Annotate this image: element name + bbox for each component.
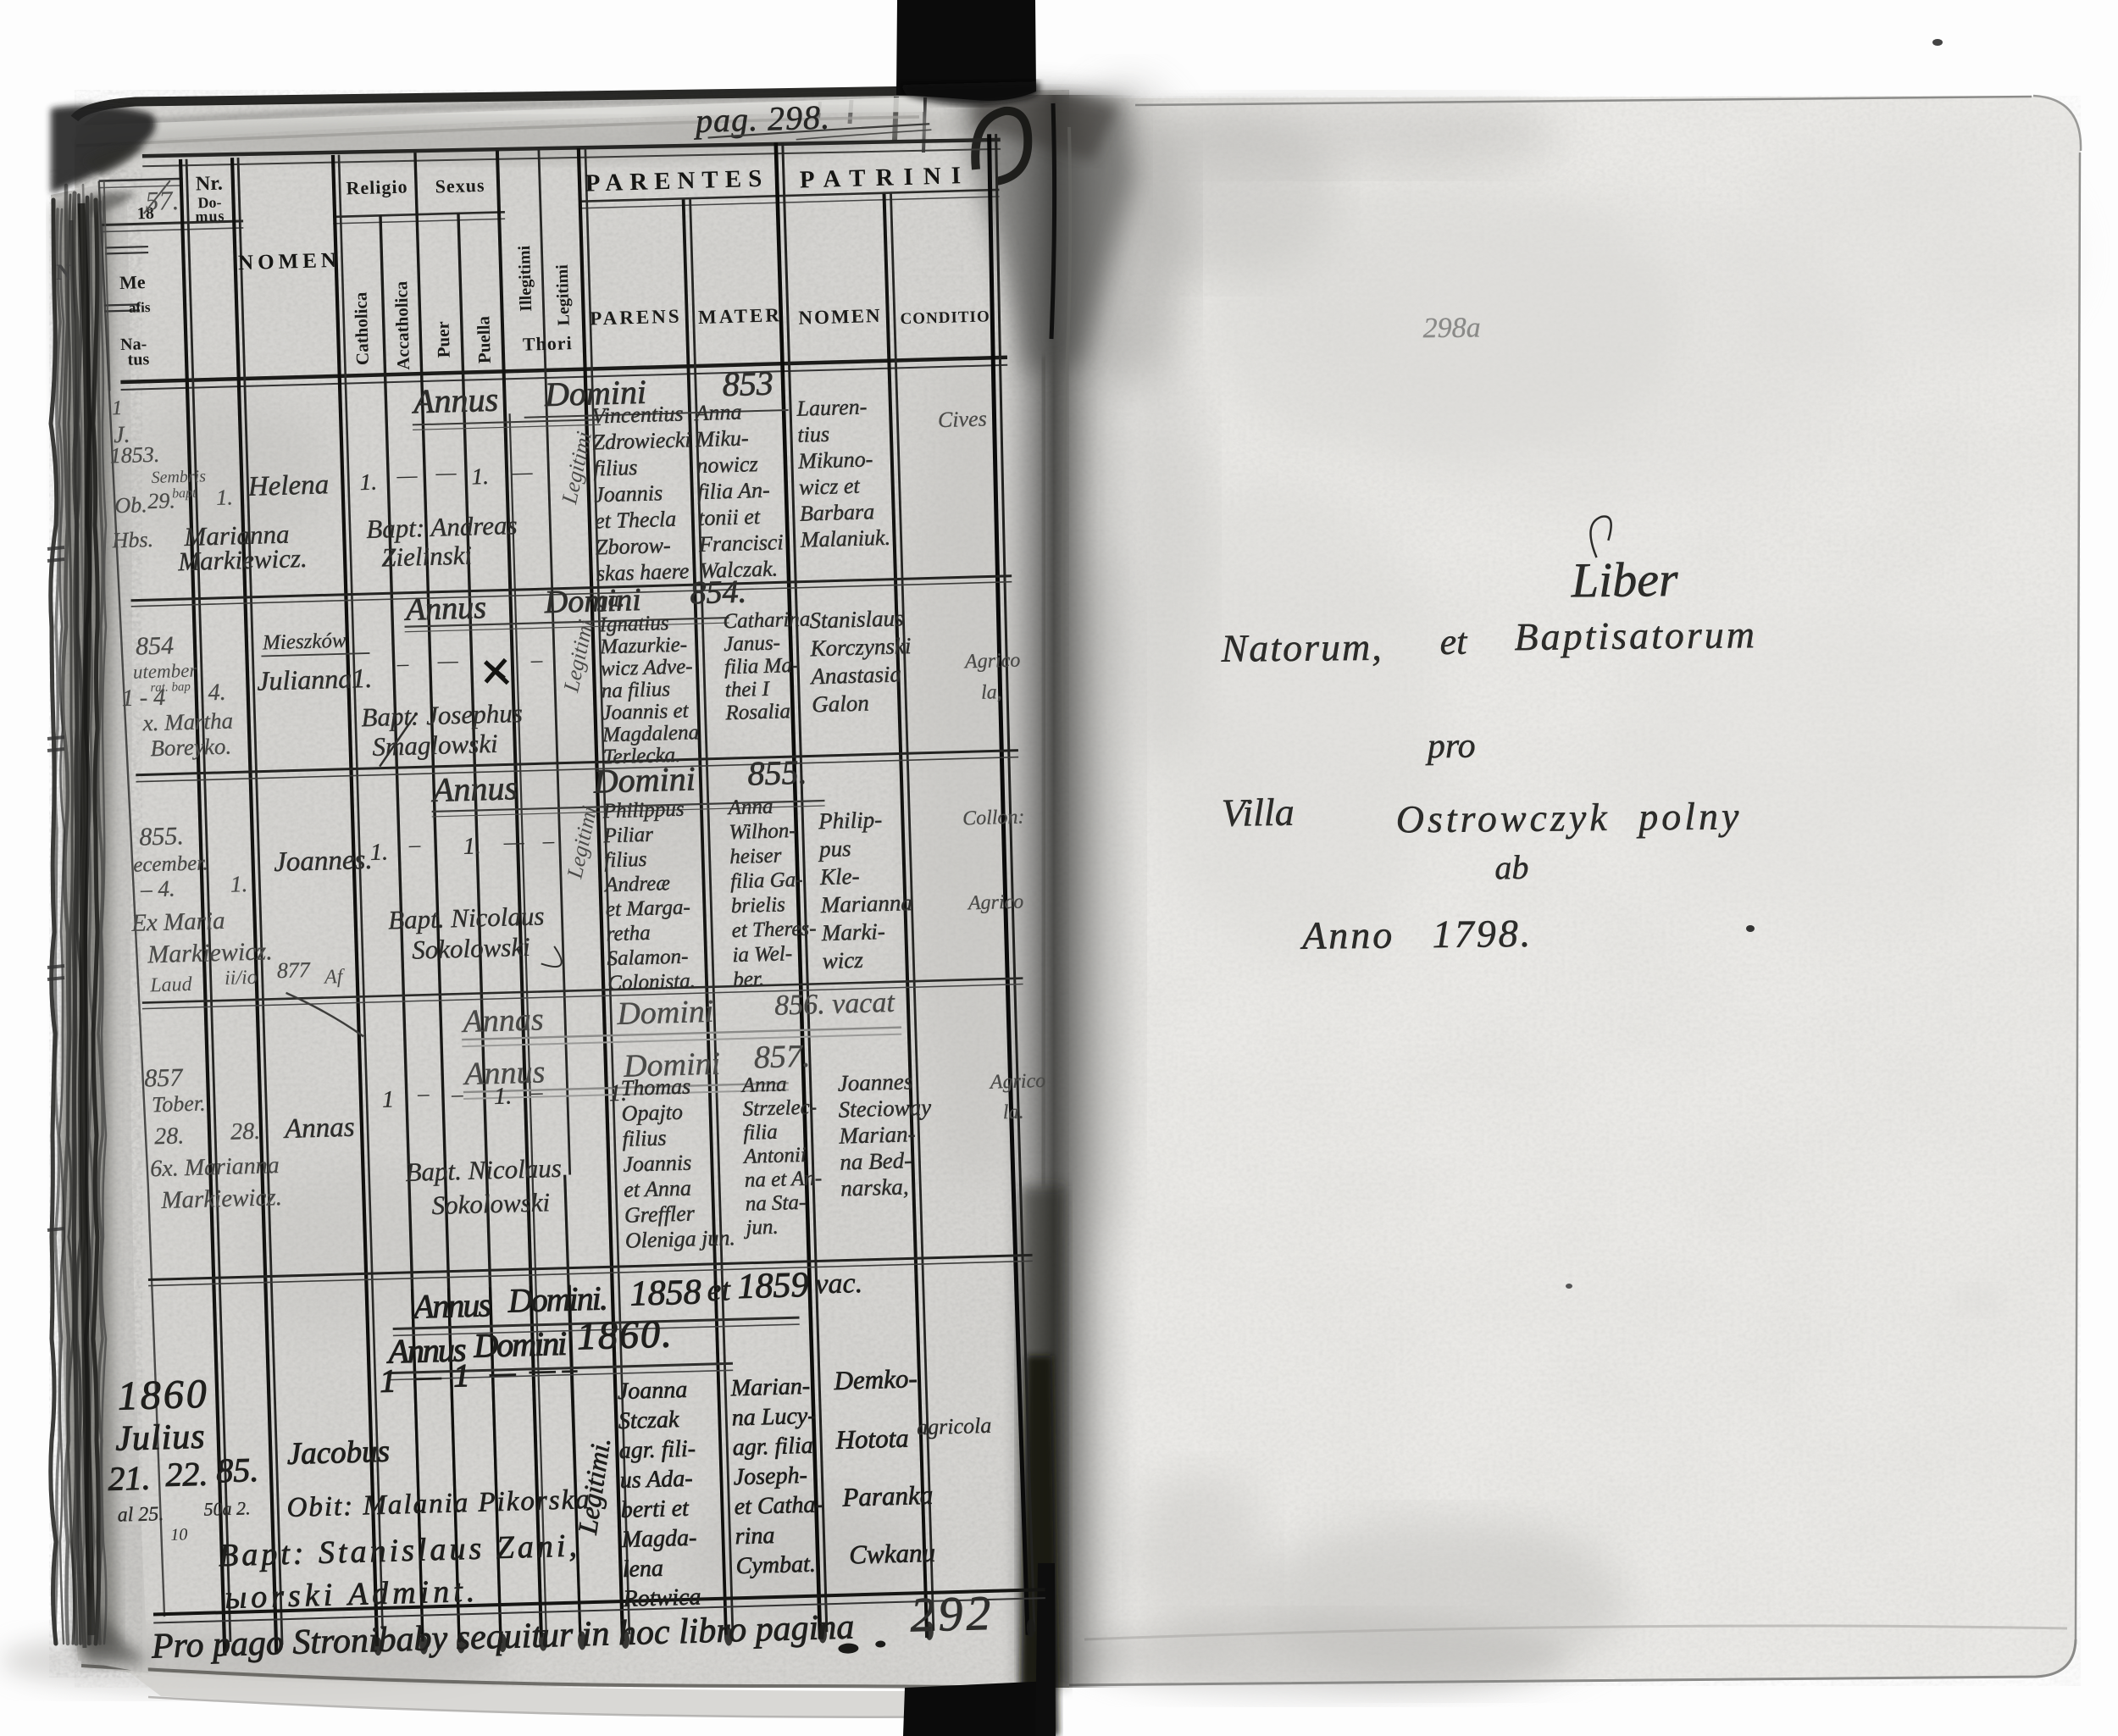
svg-text:retha: retha — [606, 922, 651, 946]
svg-text:Joanna: Joanna — [617, 1377, 687, 1405]
svg-text:N: N — [56, 260, 72, 285]
svg-text:Puer: Puer — [433, 321, 454, 358]
svg-text:Julianna1.: Julianna1. — [257, 663, 373, 696]
svg-text:1.: 1. — [463, 833, 481, 860]
svg-text:Ex Maria: Ex Maria — [130, 907, 225, 937]
svg-text:Joannis et: Joannis et — [602, 699, 690, 724]
svg-text:298a: 298a — [1422, 312, 1480, 344]
svg-text:Ob.: Ob. — [114, 492, 147, 518]
svg-text:NOMEN: NOMEN — [798, 305, 882, 329]
svg-text:PARENS: PARENS — [590, 305, 682, 329]
svg-text:1.: 1. — [230, 871, 248, 897]
svg-text:1 - 4: 1 - 4 — [121, 685, 165, 712]
svg-text:jun.: jun. — [743, 1216, 779, 1240]
svg-text:1860: 1860 — [117, 1372, 209, 1419]
svg-text:Bapt. Nicolaus: Bapt. Nicolaus — [405, 1153, 562, 1187]
svg-text:Cives: Cives — [938, 406, 988, 432]
svg-text:Agrico: Agrico — [967, 890, 1024, 914]
svg-text:1: 1 — [380, 1363, 396, 1400]
svg-text:Agrico: Agrico — [963, 649, 1021, 673]
svg-text:PARENTES: PARENTES — [585, 165, 768, 197]
svg-text:bapt: bapt — [172, 486, 197, 502]
svg-text:28.: 28. — [154, 1123, 185, 1150]
svg-text:—: — — [435, 459, 457, 485]
svg-text:et Thecla: et Thecla — [595, 507, 677, 534]
svg-text:Anastasia: Anastasia — [809, 661, 901, 689]
svg-text:lena: lena — [622, 1556, 663, 1583]
svg-text:Barbara: Barbara — [800, 499, 875, 525]
svg-text:Wilhon-: Wilhon- — [729, 819, 796, 844]
svg-text:Magda-: Magda- — [620, 1525, 696, 1553]
svg-text:–: – — [396, 651, 409, 676]
svg-text:ia Wel-: ia Wel- — [732, 942, 792, 967]
svg-text:Markiewicz.: Markiewicz. — [177, 543, 308, 576]
svg-text:–: – — [529, 646, 543, 672]
svg-text:1859: 1859 — [737, 1266, 809, 1306]
svg-text:Baptisatorum: Baptisatorum — [1514, 613, 1757, 658]
svg-text:Lauren-: Lauren- — [796, 394, 868, 420]
svg-text:Cymbat.: Cymbat. — [735, 1551, 816, 1580]
svg-text:Philippus: Philippus — [602, 798, 685, 824]
svg-text:Julius: Julius — [115, 1417, 207, 1459]
svg-text:–: – — [417, 1080, 430, 1106]
svg-text:Boreyko.: Boreyko. — [150, 734, 232, 762]
svg-text:50a 2.: 50a 2. — [203, 1497, 251, 1520]
svg-text:854: 854 — [136, 631, 175, 660]
svg-text:ii/io: ii/io — [225, 967, 258, 990]
svg-text:Piliar: Piliar — [602, 824, 653, 848]
svg-text:21.: 21. — [108, 1459, 151, 1498]
svg-text:Francisci: Francisci — [698, 530, 784, 557]
svg-text:28.: 28. — [230, 1118, 261, 1145]
svg-text:877: 877 — [276, 957, 311, 983]
svg-text:pro: pro — [1425, 727, 1476, 767]
svg-text:Magdalena: Magdalena — [602, 721, 700, 746]
svg-text:857: 857 — [144, 1063, 185, 1092]
svg-text:Anno 1798.: Anno 1798. — [1300, 912, 1533, 957]
svg-text:la,: la, — [981, 681, 1002, 704]
svg-text:1: 1 — [453, 1358, 470, 1395]
svg-text:1.: 1. — [216, 485, 233, 510]
svg-text:na et An-: na et An- — [745, 1167, 823, 1192]
svg-text:Annus: Annus — [402, 590, 486, 628]
svg-text:4.: 4. — [208, 679, 226, 707]
svg-text:Kle-: Kle- — [819, 863, 860, 890]
svg-text:Annus: Annus — [410, 1285, 491, 1326]
svg-text:afis: afis — [129, 299, 151, 316]
svg-text:ab: ab — [1494, 848, 1528, 886]
svg-text:berti et: berti et — [620, 1495, 690, 1523]
svg-text:et: et — [707, 1272, 732, 1308]
svg-text:agricola: agricola — [917, 1413, 992, 1439]
svg-text:854.: 854. — [690, 574, 747, 611]
svg-text:Marki-: Marki- — [820, 918, 885, 946]
svg-text:rina: rina — [735, 1522, 775, 1550]
svg-text:Colonista.: Colonista. — [607, 969, 696, 995]
svg-text:nowicz: nowicz — [696, 452, 758, 478]
svg-text:1.: 1. — [471, 463, 489, 490]
svg-text:1: 1 — [112, 397, 123, 419]
svg-text:Thori: Thori — [523, 332, 573, 355]
svg-text:filia Ga-: filia Ga- — [730, 868, 803, 893]
svg-text:Af: Af — [323, 966, 346, 989]
svg-text:Mikuno-: Mikuno- — [797, 446, 873, 473]
svg-text:ыorski Admint.: ыorski Admint. — [225, 1573, 480, 1616]
svg-text:Rotwica: Rotwica — [622, 1583, 701, 1612]
svg-text:Annas: Annas — [460, 1001, 544, 1040]
svg-text:Illegitimi: Illegitimi — [515, 245, 535, 312]
svg-text:Malaniuk.: Malaniuk. — [799, 525, 890, 552]
svg-text:Salamon-: Salamon- — [607, 946, 689, 971]
svg-text:292: 292 — [909, 1585, 995, 1643]
svg-text:Strzelec-: Strzelec- — [742, 1095, 817, 1120]
svg-text:tus: tus — [127, 350, 149, 369]
svg-text:Nr.: Nr. — [196, 173, 223, 196]
svg-text:et: et — [1439, 621, 1468, 663]
svg-text:filius: filius — [604, 848, 647, 872]
svg-text:x. Martha: x. Martha — [141, 707, 233, 735]
svg-text:855.: 855. — [747, 753, 807, 793]
svg-text:—: — — [396, 462, 419, 488]
svg-text:wicz Adve-: wicz Adve- — [601, 655, 693, 680]
svg-text:Demko-: Demko- — [833, 1363, 918, 1395]
svg-text:ber.: ber. — [733, 968, 765, 991]
svg-text:narska,: narska, — [840, 1173, 909, 1201]
svg-text:Anna: Anna — [740, 1073, 787, 1097]
svg-text:et Theres-: et Theres- — [731, 917, 816, 942]
svg-text:–: – — [530, 1079, 544, 1104]
svg-text:Greffler: Greffler — [624, 1201, 696, 1227]
svg-text:1858: 1858 — [629, 1273, 701, 1313]
svg-text:Opajto: Opajto — [621, 1100, 683, 1126]
svg-text:Ostrowczyk polny: Ostrowczyk polny — [1395, 794, 1742, 840]
svg-text:Miku-: Miku- — [695, 425, 749, 452]
svg-text:Bapt. Nicolaus: Bapt. Nicolaus — [388, 901, 545, 935]
svg-text:Sokolowski: Sokolowski — [431, 1187, 550, 1220]
svg-text:Korczynski: Korczynski — [809, 633, 912, 661]
svg-text:Joannes.: Joannes. — [274, 845, 373, 878]
svg-text:1: 1 — [382, 1086, 395, 1112]
svg-text:et Marga-: et Marga- — [606, 896, 690, 921]
svg-text:et Catha-: et Catha- — [734, 1491, 823, 1520]
svg-text:filius: filius — [593, 455, 638, 480]
svg-text:Hotota: Hotota — [834, 1423, 909, 1455]
svg-text:Catharina: Catharina — [723, 607, 811, 633]
svg-text:85.: 85. — [216, 1450, 259, 1489]
svg-text:1.: 1. — [370, 839, 389, 866]
svg-text:Marian-: Marian- — [838, 1121, 916, 1149]
svg-text:1.: 1. — [359, 469, 377, 496]
svg-text:us Ada-: us Ada- — [619, 1466, 693, 1494]
svg-text:22.: 22. — [165, 1455, 208, 1494]
svg-text:Smaglowski: Smaglowski — [372, 729, 498, 762]
svg-text:Jacobus: Jacobus — [286, 1434, 390, 1472]
svg-text:Stanislaus: Stanislaus — [809, 605, 904, 633]
svg-text:agr. filia: agr. filia — [732, 1433, 813, 1461]
svg-text:Marian-: Marian- — [729, 1373, 810, 1402]
svg-text:et Anna: et Anna — [624, 1176, 691, 1202]
svg-text:Natorum,: Natorum, — [1220, 625, 1383, 670]
svg-text:heiser: heiser — [729, 844, 782, 868]
svg-text:na Bed-: na Bed- — [840, 1147, 912, 1174]
svg-text:Stczak: Stczak — [618, 1406, 679, 1434]
svg-text:Hbs.: Hbs. — [111, 527, 153, 552]
svg-text:Cwkanи: Cwkanи — [849, 1538, 936, 1570]
svg-text:–: – — [408, 831, 421, 857]
svg-text:filia An-: filia An- — [697, 478, 770, 504]
svg-text:Bapt: Josephus: Bapt: Josephus — [361, 698, 523, 732]
svg-text:al 25.: al 25. — [117, 1503, 164, 1527]
svg-text:29.: 29. — [147, 488, 175, 513]
svg-text:vac.: vac. — [815, 1267, 863, 1301]
svg-text:1860.: 1860. — [576, 1312, 674, 1357]
svg-text:wicz: wicz — [822, 947, 863, 973]
svg-text:brielis: brielis — [731, 893, 786, 918]
svg-text:skas haere: skas haere — [596, 558, 689, 585]
svg-text:855.: 855. — [139, 822, 184, 851]
svg-text:6x. Marianna: 6x. Marianna — [150, 1152, 280, 1182]
svg-text:Paranka: Paranka — [841, 1480, 934, 1512]
svg-text:Markiewicz.: Markiewicz. — [147, 937, 273, 968]
svg-text:na filius: na filius — [601, 678, 670, 702]
svg-text:Mieszków: Mieszków — [262, 630, 347, 655]
svg-text:Thomas: Thomas — [620, 1074, 690, 1101]
svg-text:Vincentius: Vincentius — [591, 401, 684, 428]
svg-text:filia: filia — [743, 1121, 778, 1145]
svg-text:Annus: Annus — [430, 768, 518, 809]
svg-text:na Sta-: na Sta- — [745, 1191, 806, 1216]
svg-text:Zielinski: Zielinski — [381, 541, 473, 573]
svg-text:Mazurkie-: Mazurkie- — [599, 633, 687, 658]
svg-text:filius: filius — [622, 1125, 667, 1151]
svg-text:mus: mus — [195, 208, 225, 225]
svg-text:Joannes: Joannes — [837, 1068, 912, 1095]
svg-text:Rosalia: Rosalia — [724, 700, 790, 724]
svg-text:—: — — [414, 1361, 442, 1393]
svg-text:–: – — [541, 828, 555, 853]
svg-text:MATER: MATER — [698, 304, 783, 328]
svg-text:—: — — [436, 647, 459, 674]
svg-text:1.: 1. — [494, 1083, 513, 1110]
svg-text:— –: — – — [529, 1353, 579, 1386]
svg-text:Galon: Galon — [812, 691, 869, 718]
svg-text:ecember.: ecember. — [133, 851, 208, 876]
svg-text:Janus-: Janus- — [724, 631, 780, 656]
svg-text:Joannis: Joannis — [594, 480, 663, 507]
svg-text:Villa: Villa — [1221, 790, 1295, 835]
svg-text:Oleniga jun.: Oleniga jun. — [624, 1225, 735, 1253]
svg-text:Legitimi: Legitimi — [553, 263, 574, 325]
svg-text:857.: 857. — [753, 1039, 811, 1076]
svg-text:Domini: Domini — [616, 994, 714, 1032]
svg-text:856. vacat: 856. vacat — [774, 987, 896, 1022]
svg-text:Religio: Religio — [346, 175, 408, 198]
svg-text:Marianna: Marianna — [819, 890, 912, 918]
svg-text:Liber: Liber — [1570, 552, 1678, 607]
svg-text:wicz et: wicz et — [799, 474, 861, 500]
svg-text:tius: tius — [797, 422, 829, 447]
svg-text:la.: la. — [1002, 1101, 1023, 1124]
svg-text:Anna: Anna — [726, 796, 773, 820]
svg-text:–: – — [451, 1081, 464, 1106]
svg-text:Zdrowiecki: Zdrowiecki — [592, 427, 691, 454]
svg-text:Zborow-: Zborow- — [596, 533, 671, 559]
svg-text:Annas: Annas — [283, 1112, 355, 1145]
svg-text:853: 853 — [722, 364, 773, 404]
svg-text:Sokolowski: Sokolowski — [412, 932, 530, 965]
svg-text:na Lucy-: na Lucy- — [731, 1403, 816, 1432]
svg-text:Helena: Helena — [247, 469, 329, 502]
svg-text:—: — — [489, 1356, 517, 1389]
svg-text:Markiewicz.: Markiewicz. — [160, 1184, 282, 1214]
svg-text:Joannis: Joannis — [623, 1151, 692, 1177]
svg-text:Me: Me — [119, 271, 146, 293]
svg-text:Bapt: Andreas: Bapt: Andreas — [366, 510, 518, 544]
svg-text:pus: pus — [818, 835, 851, 862]
svg-text:Joseph-: Joseph- — [733, 1462, 807, 1490]
svg-text:Sembris: Sembris — [151, 467, 206, 487]
svg-text:Tober.: Tober. — [152, 1091, 206, 1118]
svg-text:—: — — [502, 829, 525, 855]
svg-text:PATRINI: PATRINI — [799, 162, 971, 194]
svg-text:– 4.: – 4. — [140, 875, 175, 901]
svg-text:Antonii: Antonii — [742, 1144, 807, 1168]
svg-text:Agrico: Agrico — [988, 1070, 1045, 1094]
svg-text:Laud: Laud — [149, 973, 193, 996]
svg-text:Philip-: Philip- — [818, 807, 883, 834]
svg-text:Anna: Anna — [693, 400, 742, 426]
svg-text:Domini: Domini — [592, 759, 696, 800]
svg-text:NOMEN: NOMEN — [238, 249, 341, 275]
svg-text:Puella: Puella — [473, 315, 495, 363]
svg-text:Accatholica: Accatholica — [391, 280, 413, 370]
svg-text:CONDITIO: CONDITIO — [900, 308, 990, 328]
svg-text:10: 10 — [170, 1525, 188, 1545]
svg-text:thei I: thei I — [724, 678, 770, 702]
svg-text:1853.: 1853. — [109, 442, 159, 469]
svg-text:Collon:: Collon: — [962, 806, 1025, 829]
svg-text:Sexus: Sexus — [435, 175, 485, 197]
svg-text:utember: utember — [133, 660, 198, 683]
svg-text:agr. fili-: agr. fili- — [618, 1436, 696, 1465]
svg-text:Ignatius: Ignatius — [598, 612, 669, 636]
svg-text:filia Ma-: filia Ma- — [724, 654, 800, 679]
svg-text:Catholica: Catholica — [350, 291, 372, 365]
svg-text:tonii et: tonii et — [698, 504, 761, 530]
svg-text:—: — — [511, 458, 534, 485]
svg-text:Annus: Annus — [411, 380, 499, 421]
svg-text:Andreæ: Andreæ — [603, 872, 671, 896]
svg-text:Stecioway: Stecioway — [838, 1095, 931, 1123]
